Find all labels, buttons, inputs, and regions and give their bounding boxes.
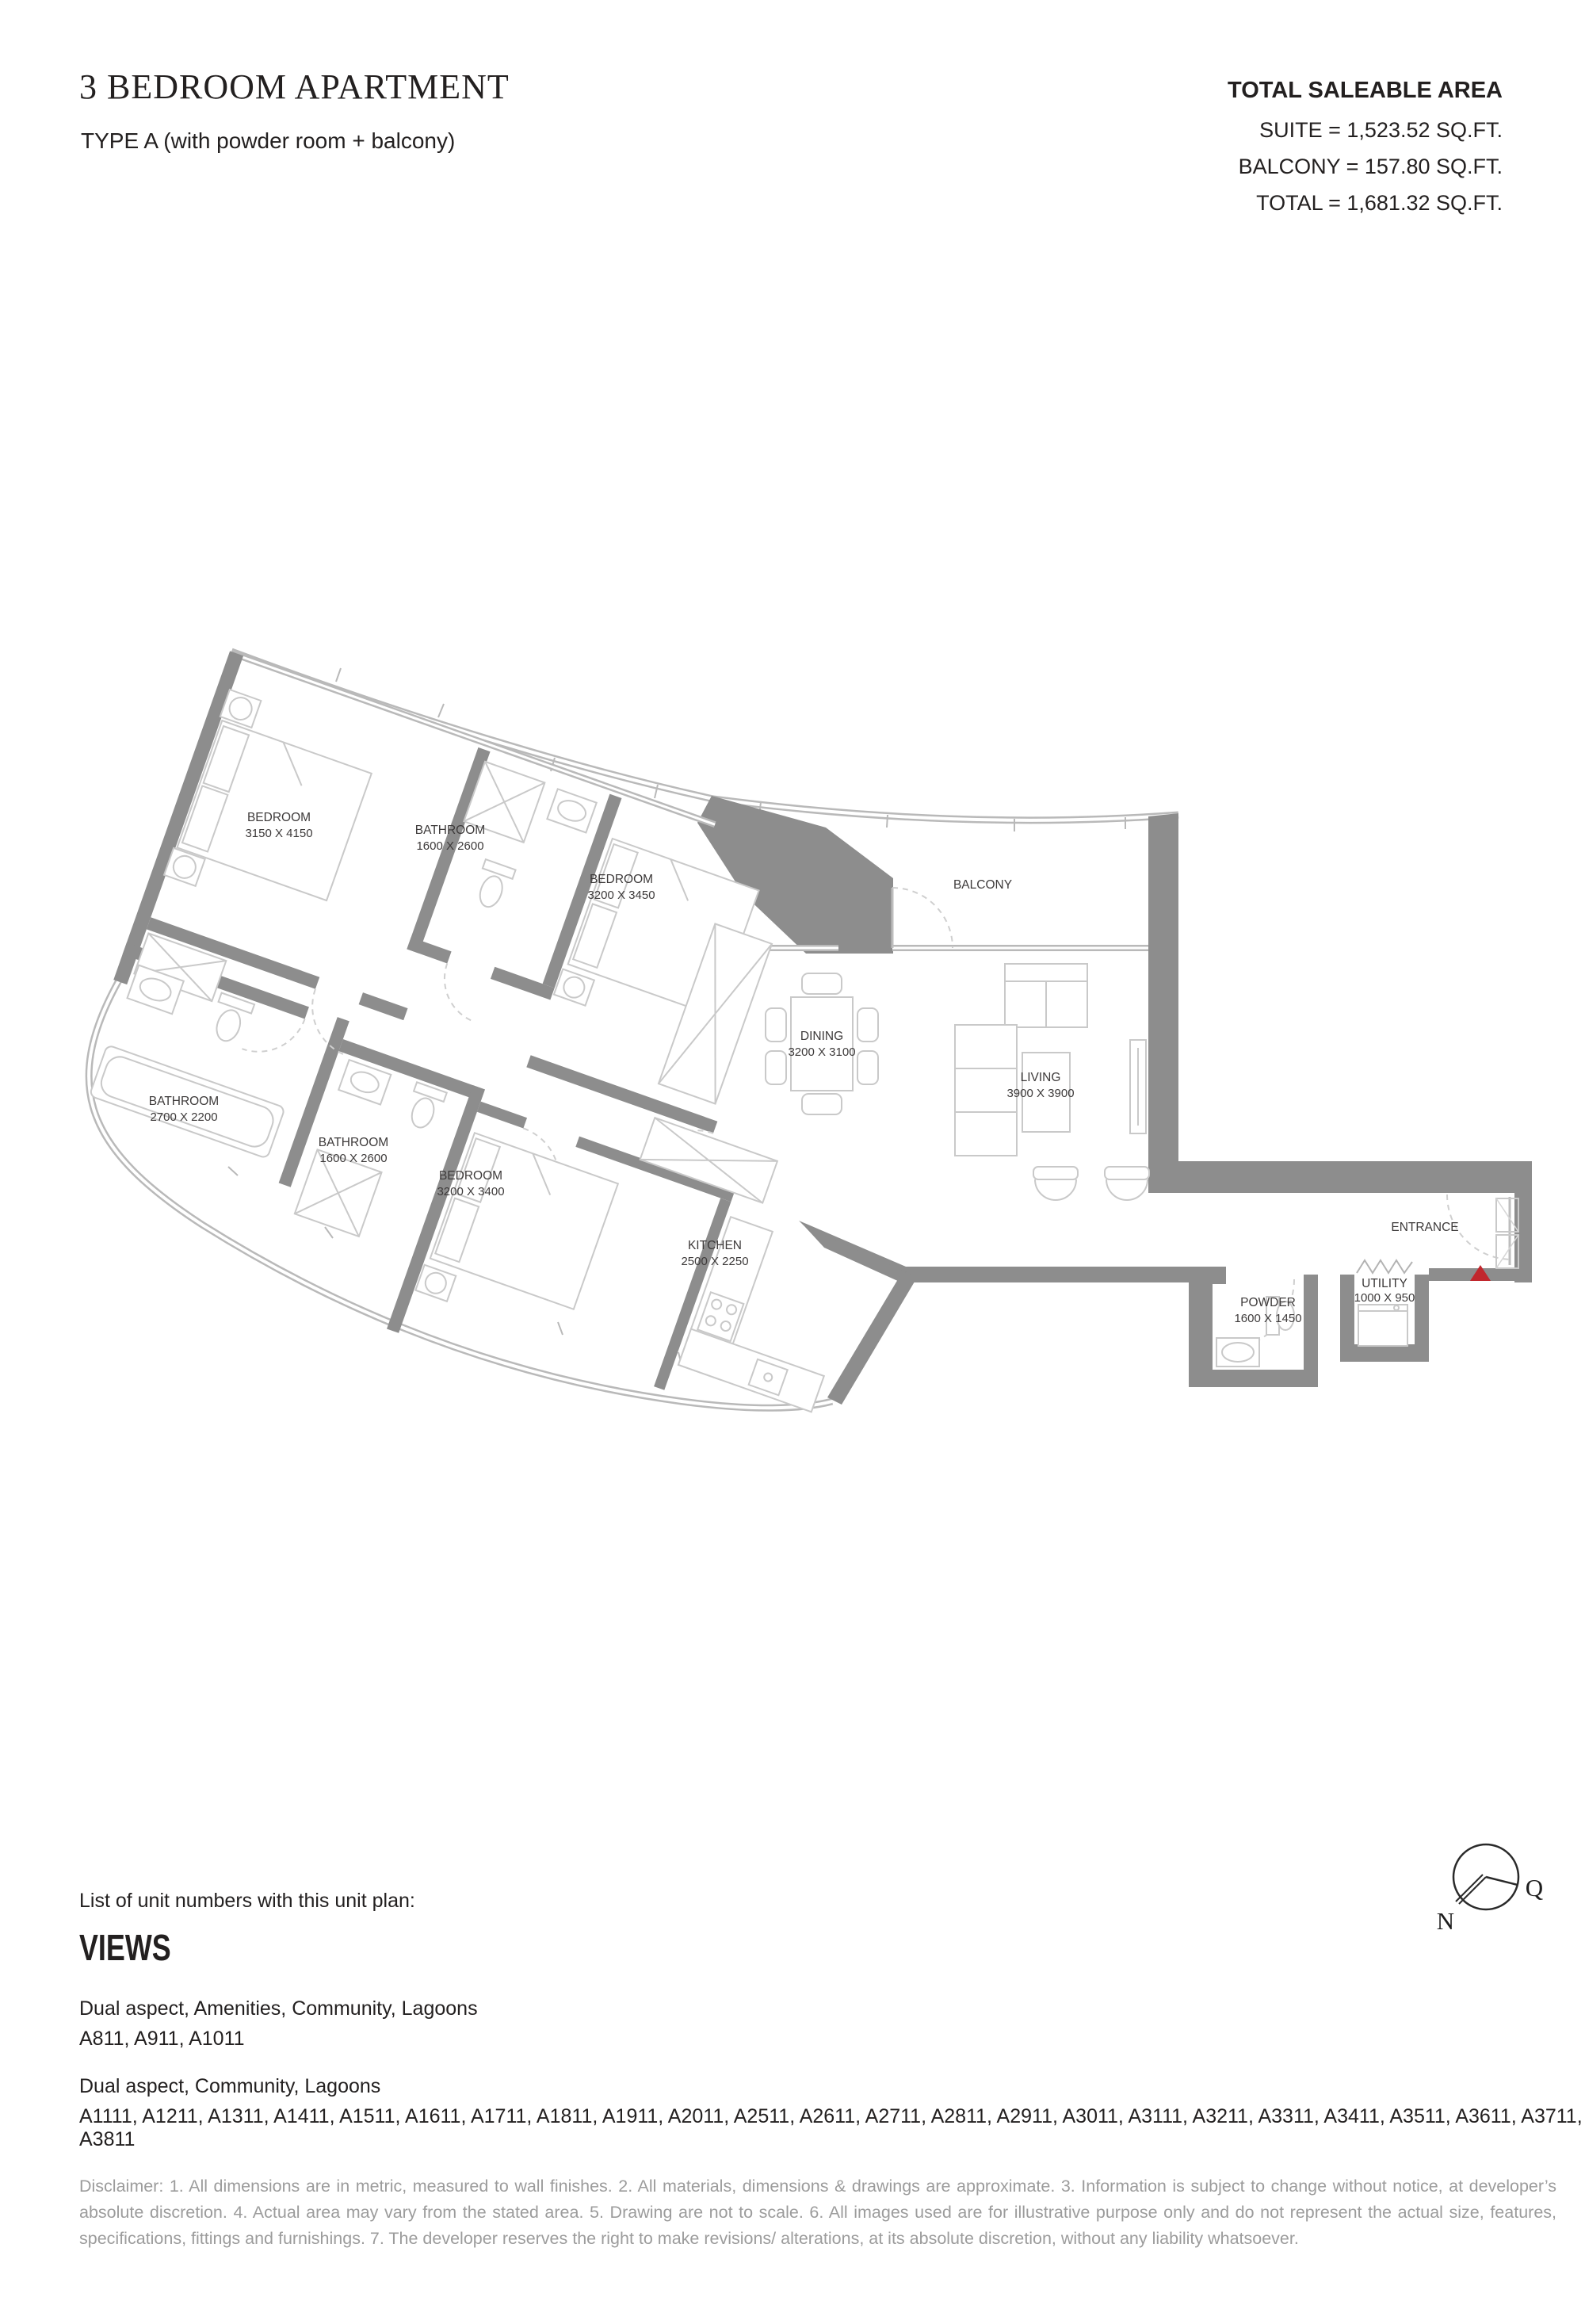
views-heading: VIEWS — [79, 1926, 171, 1969]
svg-text:3200 X 3450: 3200 X 3450 — [587, 889, 655, 902]
room-label-balcony: BALCONY — [953, 878, 1012, 892]
svg-text:DINING: DINING — [800, 1030, 843, 1043]
svg-text:3200 X 3100: 3200 X 3100 — [788, 1045, 855, 1059]
unit-list-label: List of unit numbers with this unit plan… — [79, 1890, 415, 1913]
svg-text:3150 X 4150: 3150 X 4150 — [245, 827, 312, 840]
svg-text:LIVING: LIVING — [1021, 1071, 1061, 1084]
room-label-bathroom-3: BATHROOM 1600 X 2600 — [319, 1136, 388, 1165]
svg-text:POWDER: POWDER — [1240, 1296, 1296, 1309]
room-label-utility: UTILITY 1000 X 950 — [1354, 1277, 1415, 1305]
svg-text:UTILITY: UTILITY — [1362, 1277, 1407, 1290]
compass: N Q — [1437, 1844, 1543, 1935]
svg-text:1600 X 1450: 1600 X 1450 — [1234, 1312, 1301, 1325]
compass-north-label: N — [1437, 1907, 1454, 1935]
svg-text:2700 X 2200: 2700 X 2200 — [150, 1110, 217, 1124]
utility-louver-door — [1357, 1260, 1412, 1273]
svg-text:1600 X 2600: 1600 X 2600 — [319, 1152, 387, 1165]
floorplan-page: 3 BEDROOM APARTMENT TYPE A (with powder … — [0, 0, 1585, 2324]
svg-text:1000 X 950: 1000 X 950 — [1354, 1291, 1415, 1305]
svg-text:3200 X 3400: 3200 X 3400 — [437, 1185, 504, 1198]
svg-text:KITCHEN: KITCHEN — [688, 1239, 742, 1252]
view-group-1-units: A811, A911, A1011 — [79, 2028, 245, 2051]
svg-text:ENTRANCE: ENTRANCE — [1391, 1221, 1458, 1234]
view-group-2-units: A1111, A1211, A1311, A1411, A1511, A1611… — [79, 2105, 1585, 2151]
svg-text:BALCONY: BALCONY — [953, 878, 1012, 892]
svg-text:3900 X 3900: 3900 X 3900 — [1006, 1087, 1074, 1100]
svg-text:BEDROOM: BEDROOM — [439, 1169, 502, 1183]
view-group-2-heading: Dual aspect, Community, Lagoons — [79, 2075, 380, 2098]
svg-text:BATHROOM: BATHROOM — [149, 1095, 219, 1108]
svg-text:BATHROOM: BATHROOM — [415, 824, 485, 837]
svg-text:1600 X 2600: 1600 X 2600 — [416, 839, 483, 853]
floorplan-drawing: BEDROOM 3150 X 4150 BATHROOM 1600 X 2600… — [0, 0, 1585, 2324]
svg-text:BEDROOM: BEDROOM — [590, 873, 653, 886]
view-group-1-heading: Dual aspect, Amenities, Community, Lagoo… — [79, 1997, 478, 2020]
svg-text:2500 X 2250: 2500 X 2250 — [681, 1255, 748, 1268]
svg-text:BEDROOM: BEDROOM — [247, 811, 311, 824]
room-label-entrance: ENTRANCE — [1391, 1221, 1458, 1234]
disclaimer-text: Disclaimer: 1. All dimensions are in met… — [79, 2173, 1556, 2252]
compass-q-label: Q — [1526, 1874, 1543, 1902]
svg-text:BATHROOM: BATHROOM — [319, 1136, 388, 1149]
